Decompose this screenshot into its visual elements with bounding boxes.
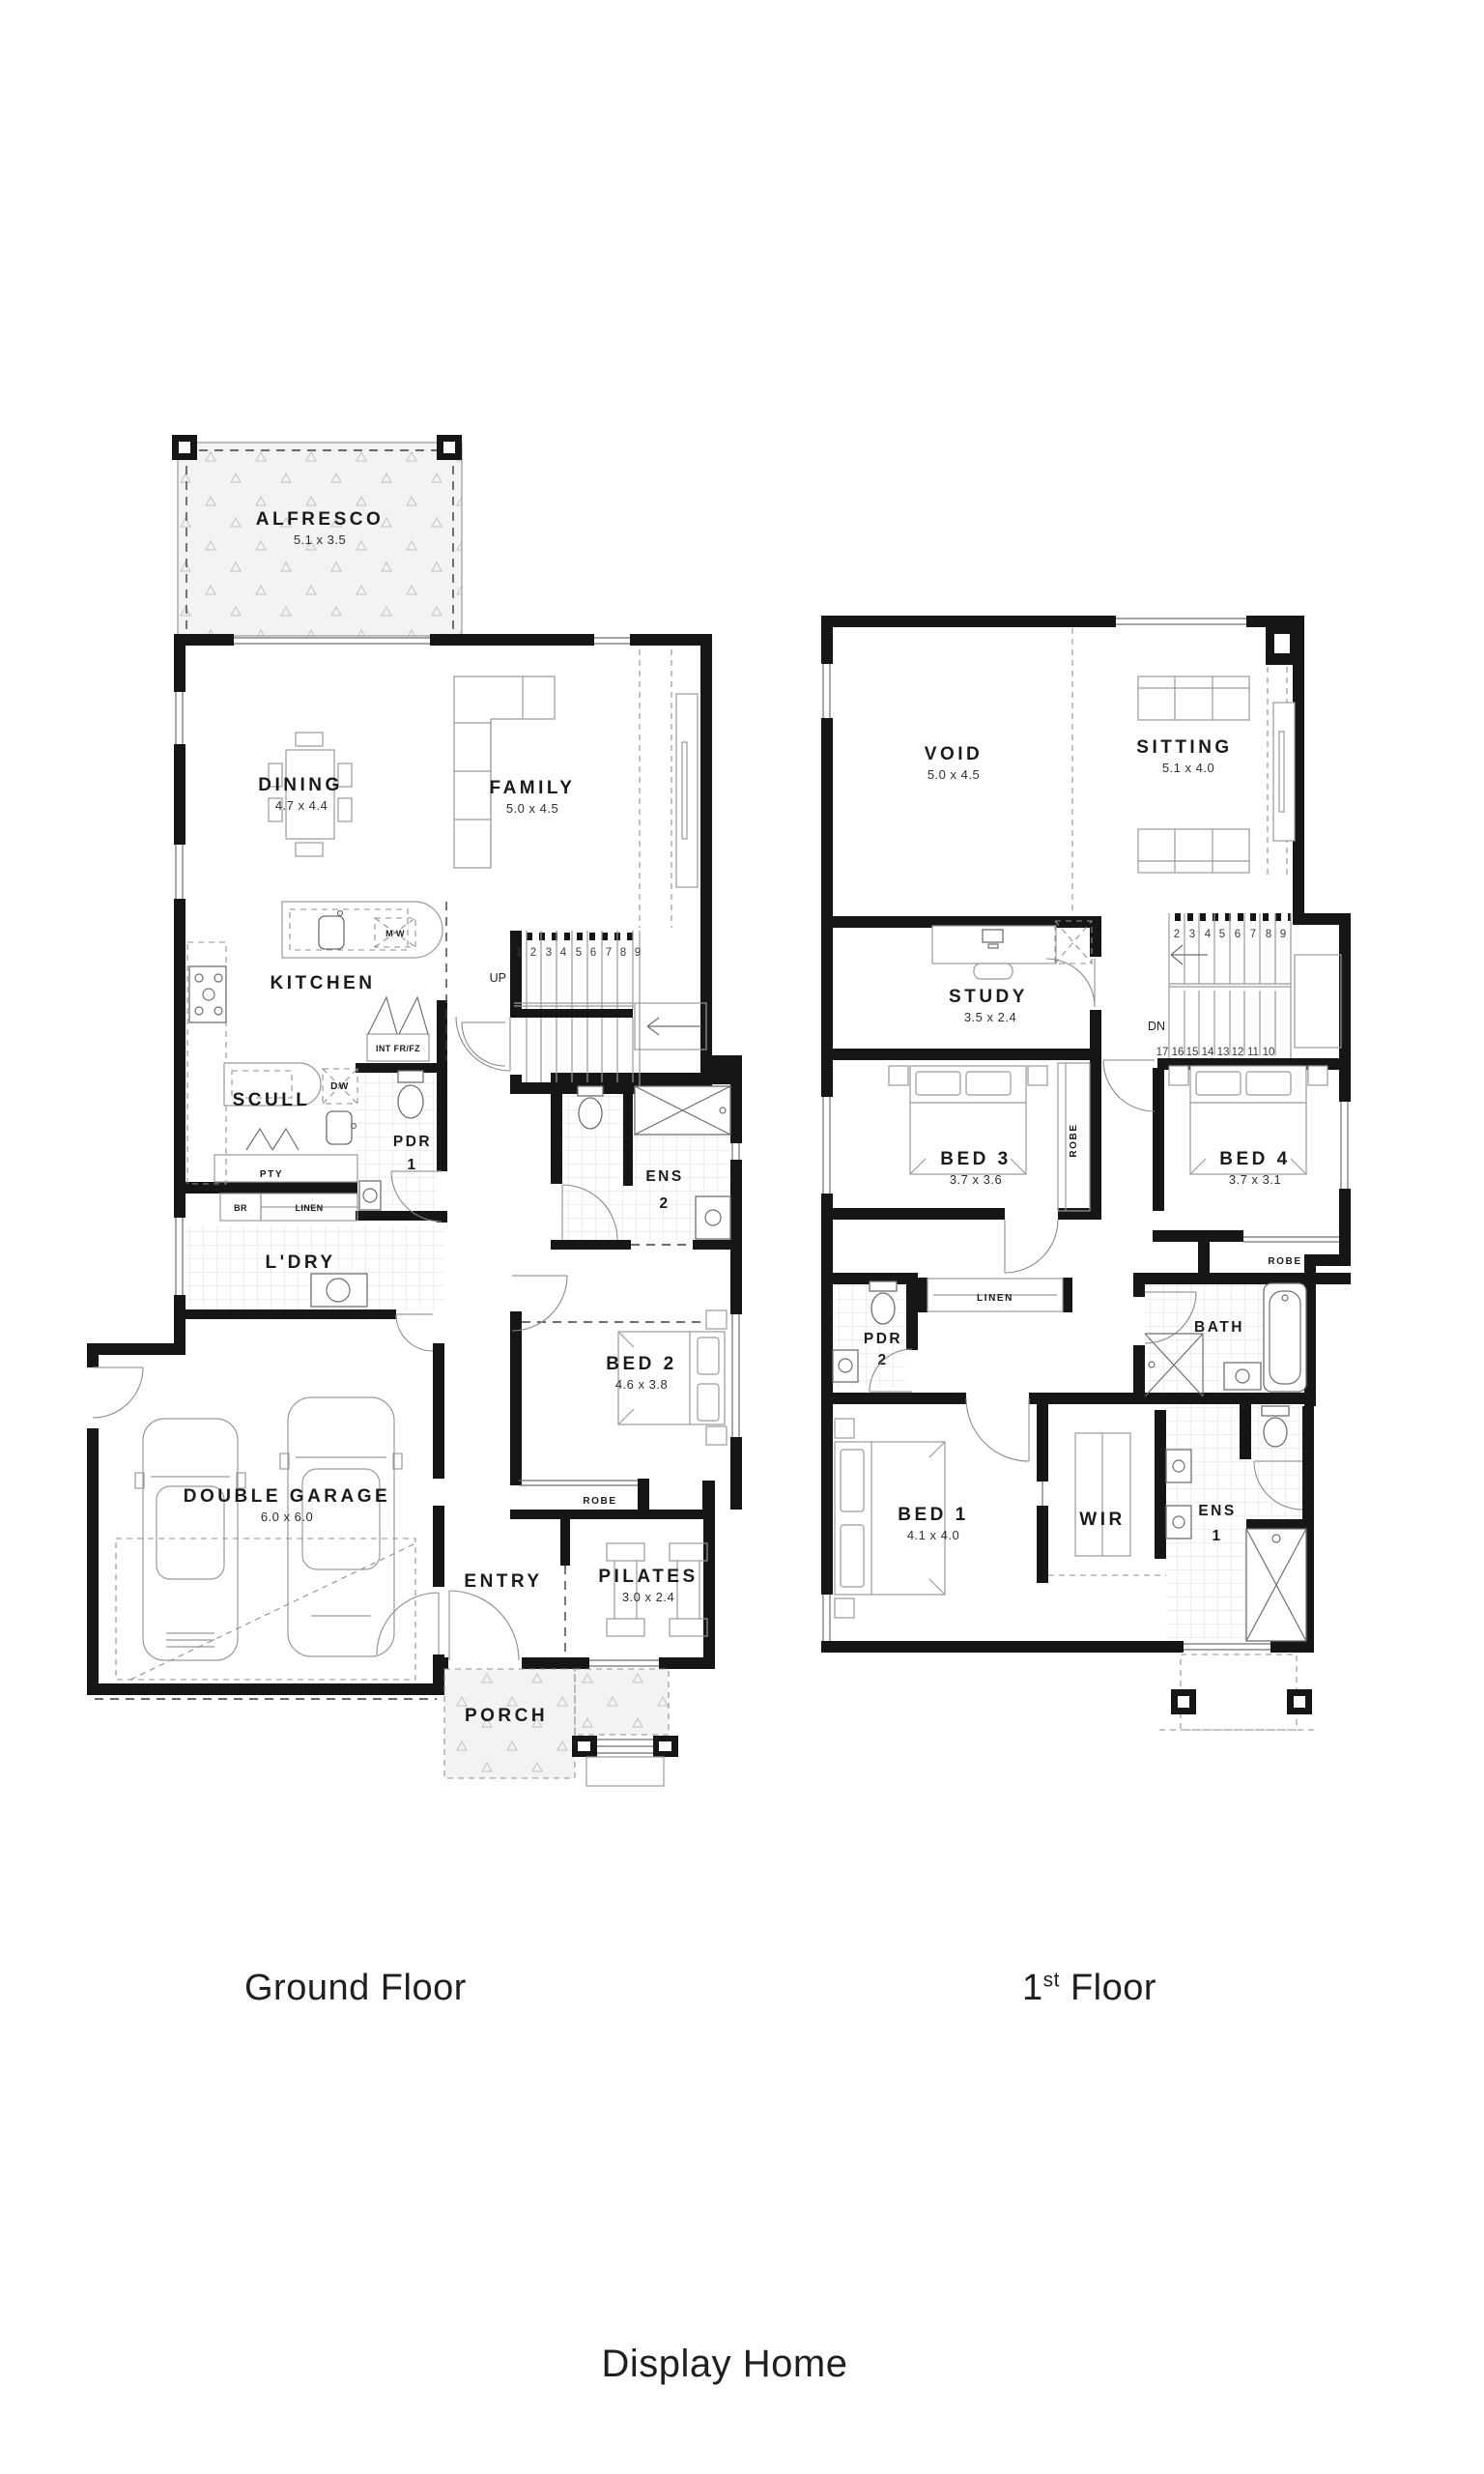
tread-number: 14 <box>1202 1047 1214 1058</box>
garage-car-left <box>135 1419 245 1660</box>
first-floor-plan: VOID 5.0 x 4.5 SITTING 5.1 x 4.0 STUDY 3… <box>802 570 1411 1798</box>
bed1-dim: 4.1 x 4.0 <box>907 1528 959 1542</box>
tread-number: 3 <box>546 947 552 959</box>
sitting-label: SITTING <box>1136 737 1232 758</box>
tread-number: 5 <box>576 947 582 959</box>
stairs-up-label: UP <box>490 971 506 985</box>
tread-number: 2 <box>1174 929 1180 940</box>
tread-number: 10 <box>1263 1047 1275 1058</box>
alfresco-dim: 5.1 x 3.5 <box>294 532 346 547</box>
first-floor-caption-num: 1 <box>1022 1968 1043 2008</box>
tread-number: 12 <box>1232 1047 1244 1058</box>
first-floor-caption-sup: st <box>1043 1969 1060 1991</box>
wir-shelving-icon <box>1042 1433 1130 1556</box>
ground-floor-caption-text: Ground Floor <box>244 1968 467 2008</box>
tread-number: 8 <box>1266 929 1271 940</box>
study-desk-icon <box>932 921 1092 979</box>
ens2-label: ENS <box>645 1168 683 1185</box>
alfresco-label: ALFRESCO <box>256 509 385 530</box>
garage-turning-area <box>116 1539 415 1680</box>
laundry-trough-icon <box>311 1274 367 1307</box>
ens1-num: 1 <box>1212 1528 1222 1544</box>
ens1-label: ENS <box>1198 1503 1236 1519</box>
alfresco-area: ALFRESCO 5.1 x 3.5 <box>172 435 462 636</box>
microwave-label: M W <box>385 929 405 938</box>
first-stairs: 2 3 4 5 6 7 8 9 17 16 15 14 13 12 11 10 … <box>1148 913 1341 1058</box>
bed3-dim: 3.7 x 3.6 <box>950 1172 1002 1187</box>
ground-floor-plan: ALFRESCO 5.1 x 3.5 <box>58 406 821 1817</box>
ens2-num: 2 <box>659 1195 670 1212</box>
laundry-label: L'DRY <box>265 1252 335 1273</box>
study-dim: 3.5 x 2.4 <box>964 1010 1016 1024</box>
dining-dim: 4.7 x 4.4 <box>275 798 328 813</box>
tread-number: 7 <box>1250 929 1256 940</box>
family-label: FAMILY <box>490 778 576 798</box>
tread-number: 6 <box>590 947 596 959</box>
stairs-dn-label: DN <box>1148 1020 1165 1033</box>
tread-number: 13 <box>1217 1047 1230 1058</box>
family-sofa-icon <box>454 676 555 868</box>
kitchen-label: KITCHEN <box>271 973 376 993</box>
tread-number: 3 <box>1189 929 1195 940</box>
bath-label: BATH <box>1194 1319 1244 1336</box>
void-label: VOID <box>925 744 983 764</box>
void-dim: 5.0 x 4.5 <box>927 767 980 782</box>
first-porch-outline <box>1159 1654 1314 1730</box>
bed4-robe-label: ROBE <box>1268 1256 1301 1267</box>
dining-label: DINING <box>258 775 343 795</box>
pantry-label: PTY <box>260 1169 283 1180</box>
pdr2-label: PDR <box>864 1331 902 1347</box>
tread-number: 8 <box>620 947 626 959</box>
bed2-label: BED 2 <box>606 1354 676 1374</box>
bed4-robe <box>1243 1237 1339 1242</box>
kitchen-island-icon <box>282 902 442 958</box>
floor-plan-page: ALFRESCO 5.1 x 3.5 <box>0 0 1484 2474</box>
tread-number: 1 <box>516 947 522 959</box>
tread-number: 7 <box>606 947 612 959</box>
sitting-tv-unit-icon <box>1273 703 1295 841</box>
tread-number: 9 <box>1280 929 1286 940</box>
scullery-label: SCULL <box>233 1090 311 1110</box>
bed2-robe-label: ROBE <box>583 1496 616 1507</box>
first-floor-caption: 1st Floor <box>1022 1968 1156 2009</box>
ground-stairs: 1 2 3 4 5 6 7 8 9 UP <box>490 931 706 1094</box>
tread-number: 17 <box>1156 1047 1169 1058</box>
first-linen-label: LINEN <box>977 1293 1013 1304</box>
broom-cupboard-label: BR <box>234 1203 247 1213</box>
tread-number: 9 <box>635 947 641 959</box>
ground-door-arcs <box>93 1017 617 1660</box>
pdr1-label: PDR <box>393 1134 432 1150</box>
cooktop-icon <box>187 942 226 1184</box>
garage-car-right <box>280 1397 402 1656</box>
fridge-label: INT FR/FZ <box>376 1044 420 1053</box>
tread-number: 6 <box>1235 929 1241 940</box>
family-tv-unit-icon <box>676 694 698 887</box>
entry-label: ENTRY <box>464 1571 542 1592</box>
garage-label: DOUBLE GARAGE <box>184 1486 390 1507</box>
bed4-dim: 3.7 x 3.1 <box>1229 1172 1281 1187</box>
tread-number: 16 <box>1172 1047 1184 1058</box>
bed4-label: BED 4 <box>1219 1149 1290 1169</box>
first-floor-caption-rest: Floor <box>1070 1968 1156 2008</box>
study-label: STUDY <box>949 987 1028 1007</box>
tread-number: 11 <box>1247 1047 1259 1058</box>
bed3-robe-label: ROBE <box>1069 1123 1079 1157</box>
wir-label: WIR <box>1079 1510 1125 1530</box>
sitting-dim: 5.1 x 4.0 <box>1162 761 1214 775</box>
tread-number: 15 <box>1186 1047 1199 1058</box>
porch-area <box>444 1669 678 1786</box>
page-title: Display Home <box>602 2343 848 2386</box>
bed3-label: BED 3 <box>940 1149 1011 1169</box>
tread-number: 4 <box>560 947 567 959</box>
garage-dim: 6.0 x 6.0 <box>261 1510 313 1524</box>
pilates-dim: 3.0 x 2.4 <box>622 1590 674 1604</box>
bed2-dim: 4.6 x 3.8 <box>615 1377 668 1392</box>
bed1-label: BED 1 <box>898 1505 968 1525</box>
tread-number: 2 <box>530 947 536 959</box>
tread-number: 5 <box>1219 929 1225 940</box>
linen-label: LINEN <box>296 1203 324 1213</box>
dishwasher-label: DW <box>330 1081 350 1092</box>
tread-number: 4 <box>1205 929 1212 940</box>
family-dim: 5.0 x 4.5 <box>506 801 558 816</box>
porch-label: PORCH <box>465 1706 548 1726</box>
ground-floor-caption: Ground Floor <box>244 1968 467 2009</box>
pilates-label: PILATES <box>598 1567 698 1587</box>
